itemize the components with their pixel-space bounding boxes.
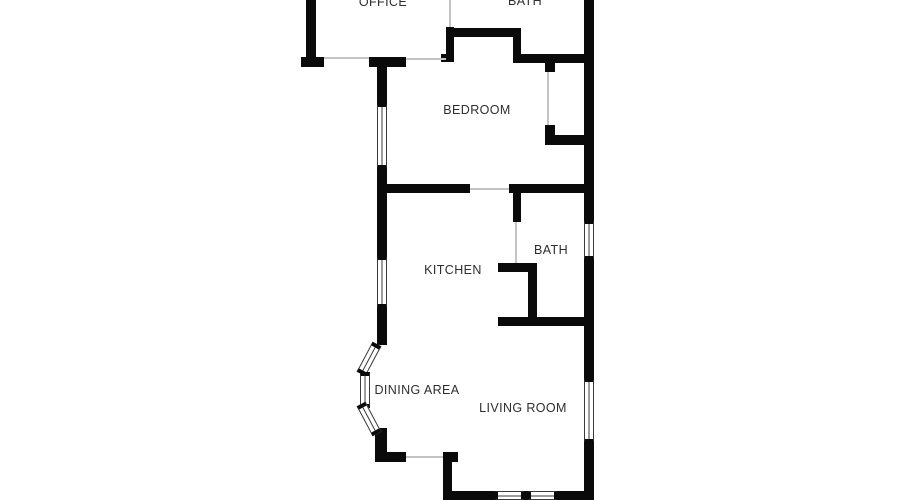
floor-plan-canvas: OFFICE BATH BEDROOM KITCHEN BATH DINING … bbox=[0, 0, 900, 500]
door-opening-bath-middle bbox=[515, 222, 517, 263]
wall-bath-top-lower-left bbox=[446, 28, 521, 37]
room-label-kitchen: KITCHEN bbox=[424, 263, 482, 277]
window-bottom-right bbox=[527, 491, 558, 500]
wall-bath-middle-stub bbox=[498, 263, 532, 272]
window-left-upper bbox=[377, 103, 387, 169]
door-opening-office-bedroom bbox=[406, 58, 446, 60]
window-right-living bbox=[584, 378, 594, 443]
window-right-bath bbox=[584, 220, 594, 260]
wall-closet-bottom bbox=[545, 135, 594, 145]
wall-bath-middle-bottom bbox=[498, 317, 594, 326]
wall-bedroom-bottom-right bbox=[509, 184, 594, 193]
door-opening-bedroom-kitchen bbox=[470, 188, 509, 190]
door-opening-closet bbox=[547, 72, 549, 125]
door-opening-office-entry bbox=[324, 57, 369, 59]
wall-office-bottom bbox=[369, 57, 406, 67]
wall-bath-middle-inner bbox=[528, 263, 537, 325]
room-label-bedroom: BEDROOM bbox=[443, 103, 510, 117]
wall-bedroom-bottom-left bbox=[382, 184, 470, 193]
room-label-living-room: LIVING ROOM bbox=[479, 401, 567, 415]
wall-closet-top-stub bbox=[545, 63, 555, 72]
room-label-bath-top: BATH bbox=[508, 0, 542, 8]
wall-bath-middle-left bbox=[513, 184, 521, 222]
room-label-dining-area: DINING AREA bbox=[375, 383, 460, 397]
room-label-bath-middle: BATH bbox=[534, 243, 568, 257]
window-bottom-left bbox=[494, 491, 525, 500]
wall-dining-bottom bbox=[375, 452, 406, 462]
wall-bath-top-lower-right bbox=[513, 54, 594, 63]
window-left-kitchen bbox=[377, 256, 387, 308]
door-opening-dining-exit bbox=[406, 456, 443, 458]
wall-office-bottom-foot bbox=[301, 57, 324, 67]
room-label-office: OFFICE bbox=[359, 0, 407, 9]
door-opening-office-bath bbox=[449, 0, 451, 27]
